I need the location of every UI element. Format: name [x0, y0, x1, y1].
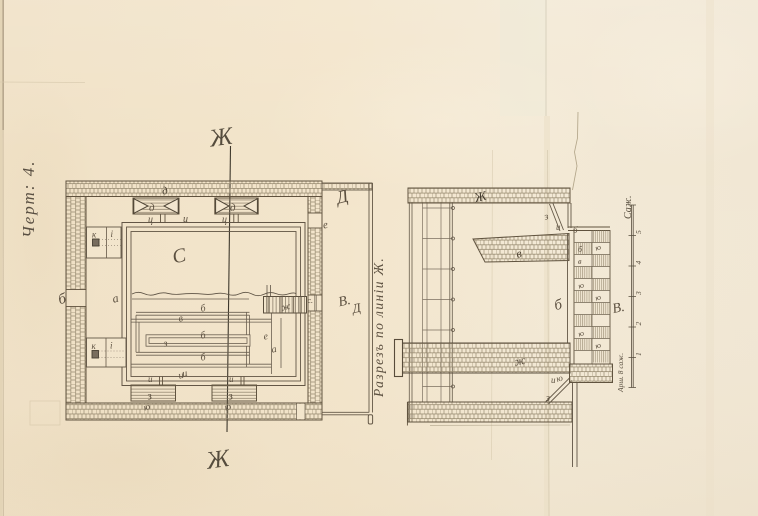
svg-text:и: и — [556, 222, 561, 232]
svg-text:и: и — [183, 214, 188, 225]
svg-text:ц: ц — [222, 215, 227, 226]
svg-text:Разрезъ по линіи Ж.: Разрезъ по линіи Ж. — [371, 257, 386, 398]
svg-text:Арш. 8 саж.: Арш. 8 саж. — [616, 353, 625, 393]
svg-text:1: 1 — [634, 352, 643, 356]
svg-text:4: 4 — [634, 261, 643, 265]
svg-text:в: в — [578, 257, 582, 266]
svg-text:д: д — [149, 202, 155, 214]
svg-text:Ж: Ж — [204, 445, 233, 475]
svg-text:и: и — [229, 374, 234, 384]
svg-text:и: и — [148, 374, 153, 384]
svg-text:Саж.: Саж. — [623, 195, 634, 219]
svg-text:Черт: 4.: Черт: 4. — [19, 160, 38, 238]
svg-text:Ж: Ж — [207, 123, 236, 153]
svg-text:з: з — [545, 393, 550, 404]
svg-text:5: 5 — [634, 230, 643, 234]
svg-text:с.: с. — [308, 296, 314, 305]
svg-text:3: 3 — [634, 291, 643, 296]
svg-text:ц: ц — [148, 215, 153, 226]
svg-text:д: д — [230, 202, 236, 214]
svg-text:2: 2 — [634, 322, 643, 326]
